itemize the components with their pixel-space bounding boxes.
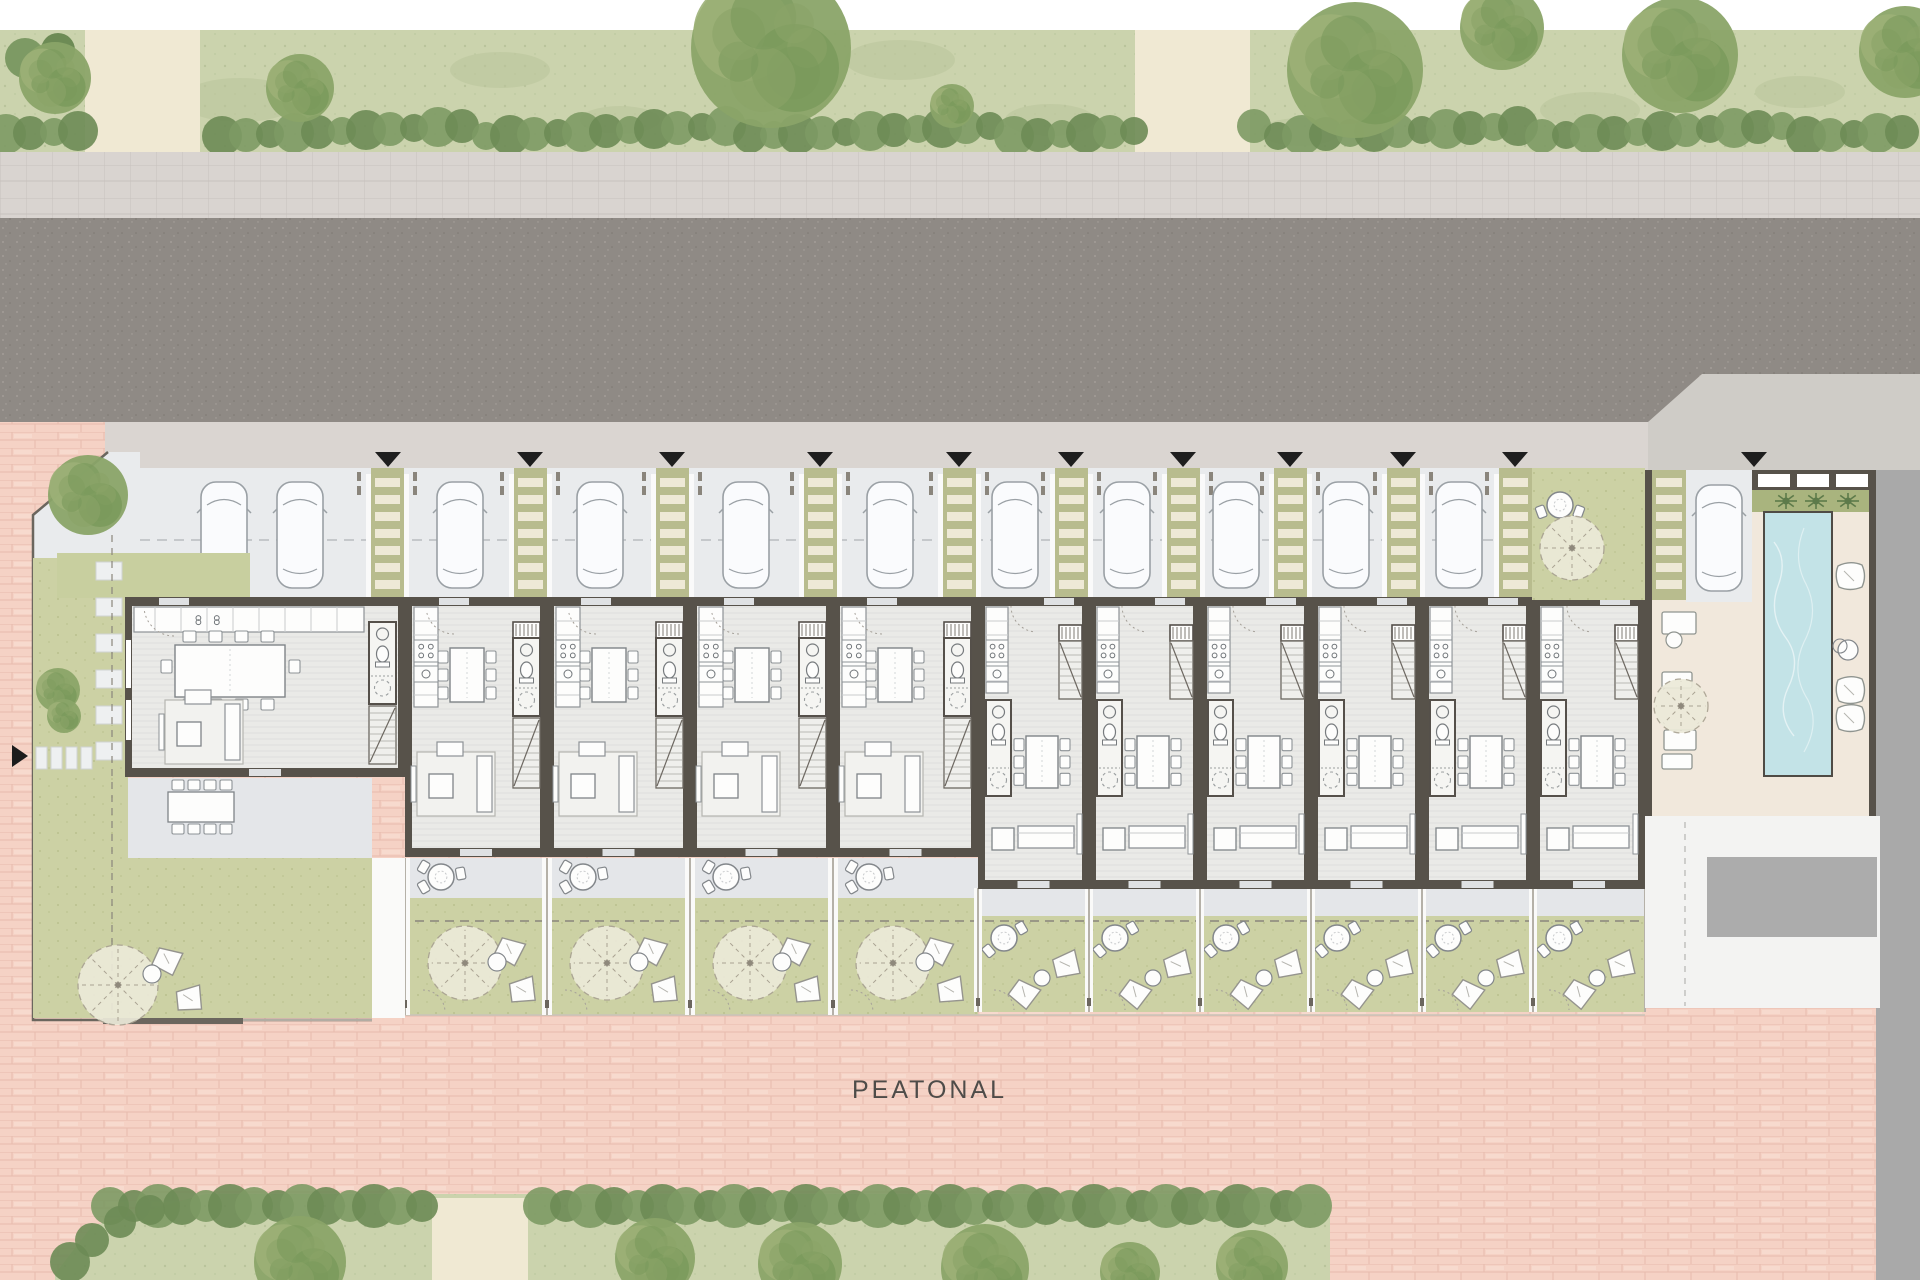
staircase bbox=[944, 718, 971, 788]
sink bbox=[556, 666, 580, 682]
party-wall bbox=[971, 597, 978, 857]
chair bbox=[1393, 739, 1403, 751]
coffee-table bbox=[857, 774, 881, 798]
west-wall bbox=[1645, 470, 1652, 824]
stepping-stone bbox=[96, 706, 122, 724]
bollard-tick bbox=[698, 472, 702, 481]
bollard-tick bbox=[985, 486, 989, 495]
utility-closet bbox=[944, 622, 971, 638]
garden-door bbox=[603, 849, 635, 856]
garden-tree bbox=[48, 455, 128, 535]
chair bbox=[1458, 739, 1468, 751]
car bbox=[719, 482, 773, 588]
side-table bbox=[1478, 970, 1494, 986]
townhouse-unit-5 bbox=[833, 597, 978, 857]
bathroom bbox=[799, 638, 826, 716]
stove bbox=[699, 640, 723, 662]
chair bbox=[740, 867, 751, 880]
utility-closet bbox=[513, 622, 540, 638]
bathroom bbox=[1097, 700, 1122, 796]
chair bbox=[235, 631, 248, 642]
pool-pillow bbox=[1836, 705, 1864, 732]
bollard-tick bbox=[556, 486, 560, 495]
toilet bbox=[521, 662, 533, 678]
utility-closet bbox=[1170, 625, 1193, 641]
chair bbox=[580, 651, 590, 663]
pool-amenity-area bbox=[1645, 470, 1880, 1008]
garden-door bbox=[1129, 881, 1161, 888]
party-wall bbox=[1082, 597, 1089, 889]
stove bbox=[986, 640, 1008, 662]
chair bbox=[1060, 756, 1070, 768]
dining-table bbox=[580, 648, 638, 702]
staircase bbox=[799, 718, 826, 788]
stove bbox=[1541, 640, 1563, 662]
utility-closet bbox=[1281, 625, 1304, 641]
townhouse-unit-7 bbox=[1089, 597, 1200, 889]
chair bbox=[597, 867, 608, 880]
grass-patch bbox=[845, 40, 955, 80]
toilet bbox=[993, 724, 1005, 740]
sink bbox=[986, 666, 1008, 682]
townhouse-unit-1 bbox=[125, 597, 405, 777]
bathroom bbox=[1208, 700, 1233, 796]
bollard-tick bbox=[642, 486, 646, 495]
armchair bbox=[865, 742, 891, 756]
toilet bbox=[807, 662, 819, 678]
parasol bbox=[1540, 516, 1604, 580]
tv-bench bbox=[411, 766, 416, 802]
tv-bench bbox=[839, 766, 844, 802]
permeable-paver-strip bbox=[799, 468, 842, 600]
chair bbox=[914, 669, 924, 681]
party-wall bbox=[833, 597, 840, 857]
permeable-paver-strip bbox=[366, 468, 409, 600]
chair bbox=[914, 651, 924, 663]
living-room-set bbox=[839, 742, 923, 816]
chair bbox=[723, 687, 733, 699]
car bbox=[1432, 482, 1486, 588]
tv-bench bbox=[1521, 814, 1526, 854]
chair bbox=[1347, 773, 1357, 785]
hedge-shrub bbox=[1288, 1184, 1332, 1228]
staircase bbox=[369, 706, 396, 764]
chair bbox=[261, 699, 274, 710]
chair bbox=[1569, 739, 1579, 751]
bollard-tick bbox=[1485, 486, 1489, 495]
side-table bbox=[1145, 970, 1161, 986]
party-wall bbox=[540, 597, 547, 857]
dining-table bbox=[438, 648, 496, 702]
bollard-tick bbox=[1429, 472, 1433, 481]
garden-path bbox=[85, 30, 200, 152]
stove bbox=[1097, 640, 1119, 662]
sofa bbox=[905, 756, 920, 812]
living-room-set bbox=[553, 742, 637, 816]
fence-post bbox=[1087, 998, 1091, 1006]
car bbox=[1209, 482, 1263, 588]
chair bbox=[188, 780, 200, 790]
garden-lawn bbox=[128, 858, 372, 1018]
stove bbox=[842, 640, 866, 662]
toilet bbox=[952, 662, 964, 678]
utility-closet bbox=[1615, 625, 1638, 641]
armchair bbox=[185, 690, 211, 704]
sofa bbox=[1462, 826, 1518, 848]
party-wall bbox=[1311, 597, 1318, 889]
front-wall bbox=[690, 597, 833, 606]
planted-patch bbox=[57, 553, 250, 598]
side-table bbox=[630, 953, 648, 971]
chair bbox=[1615, 756, 1625, 768]
bathroom bbox=[513, 638, 540, 716]
staircase bbox=[1503, 641, 1526, 699]
paved-block bbox=[1707, 857, 1877, 937]
party-wall bbox=[1089, 597, 1096, 889]
garden-door bbox=[1018, 881, 1050, 888]
pool-pillow bbox=[1836, 563, 1864, 590]
utility-closet bbox=[656, 622, 683, 638]
car bbox=[433, 482, 487, 588]
stove bbox=[1319, 640, 1341, 662]
front-wall bbox=[405, 597, 547, 606]
pool-pillow bbox=[1836, 677, 1864, 704]
front-door bbox=[724, 598, 754, 605]
lounger bbox=[1664, 730, 1696, 750]
sink bbox=[699, 666, 723, 682]
front-door bbox=[1377, 598, 1407, 605]
toilet bbox=[1215, 724, 1227, 740]
bollard-tick bbox=[790, 486, 794, 495]
bollard-tick bbox=[929, 472, 933, 481]
chair bbox=[866, 687, 876, 699]
street-tree bbox=[1287, 2, 1423, 138]
chair bbox=[289, 660, 300, 673]
car bbox=[863, 482, 917, 588]
bathroom bbox=[369, 622, 396, 704]
side-table bbox=[1367, 970, 1383, 986]
front-wall bbox=[833, 597, 978, 606]
chair bbox=[1504, 756, 1514, 768]
bollard-tick bbox=[1209, 486, 1213, 495]
chair bbox=[1014, 756, 1024, 768]
street-tree bbox=[930, 84, 974, 128]
chair bbox=[455, 867, 466, 880]
front-door bbox=[581, 598, 611, 605]
grass-patch bbox=[450, 52, 550, 88]
bollard-tick bbox=[1316, 472, 1320, 481]
dining-table bbox=[1236, 736, 1292, 788]
chair bbox=[438, 687, 448, 699]
chair bbox=[486, 669, 496, 681]
dining-table bbox=[1569, 736, 1625, 788]
stove bbox=[1430, 640, 1452, 662]
bollard-tick bbox=[1485, 472, 1489, 481]
chair bbox=[204, 780, 216, 790]
permeable-paver-strip bbox=[509, 468, 552, 600]
toilet bbox=[664, 662, 676, 678]
armchair bbox=[579, 742, 605, 756]
side-table bbox=[1666, 632, 1682, 648]
sink bbox=[1541, 666, 1563, 682]
palm-plant bbox=[1805, 493, 1827, 509]
bollard-tick bbox=[790, 472, 794, 481]
garden-door bbox=[1351, 881, 1383, 888]
side-table bbox=[1838, 640, 1858, 660]
sofa bbox=[1129, 826, 1185, 848]
utility-closet bbox=[1392, 625, 1415, 641]
garden-walkway bbox=[372, 858, 405, 1018]
fence-post bbox=[976, 998, 980, 1006]
stepping-stone bbox=[51, 747, 62, 769]
stove bbox=[414, 640, 438, 662]
coffee-table bbox=[1103, 828, 1125, 850]
hedge-shrub bbox=[406, 1190, 438, 1222]
hedge-shrub bbox=[58, 111, 98, 151]
garden-door bbox=[1573, 881, 1605, 888]
stove bbox=[1208, 640, 1230, 662]
fence-post bbox=[688, 1000, 692, 1008]
chair bbox=[1393, 773, 1403, 785]
permeable-paver-strip bbox=[938, 468, 981, 600]
bathroom bbox=[1430, 700, 1455, 796]
chair bbox=[486, 651, 496, 663]
chair bbox=[866, 669, 876, 681]
chair bbox=[204, 824, 216, 834]
lounger bbox=[1662, 612, 1696, 634]
south-landscape-strip bbox=[50, 1184, 1332, 1280]
chair bbox=[1282, 773, 1292, 785]
sink bbox=[842, 666, 866, 682]
permeable-paver-strip bbox=[1162, 468, 1205, 600]
chair bbox=[1347, 739, 1357, 751]
living-room-set bbox=[159, 690, 243, 764]
bollard-tick bbox=[1097, 486, 1101, 495]
bollard-tick bbox=[413, 486, 417, 495]
living-room-set bbox=[696, 742, 780, 816]
hedge-shrub bbox=[135, 1195, 165, 1225]
stepping-stone bbox=[96, 562, 122, 580]
swimming-pool bbox=[1764, 512, 1832, 776]
bathroom bbox=[1541, 700, 1566, 796]
chair bbox=[723, 651, 733, 663]
fence-post bbox=[1531, 998, 1535, 1006]
chair bbox=[1615, 739, 1625, 751]
tv-bench bbox=[1410, 814, 1415, 854]
sofa bbox=[762, 756, 777, 812]
party-wall bbox=[683, 597, 690, 857]
chair bbox=[771, 687, 781, 699]
chair bbox=[261, 631, 274, 642]
kitchen-counter bbox=[1319, 607, 1341, 693]
party-wall bbox=[1422, 597, 1429, 889]
window bbox=[126, 700, 131, 740]
palm-plant bbox=[1837, 493, 1859, 509]
permeable-paver-strip bbox=[1382, 468, 1425, 600]
side-table bbox=[1589, 970, 1605, 986]
townhouse-unit-9 bbox=[1311, 597, 1422, 889]
street-tree bbox=[1622, 0, 1738, 113]
side-table bbox=[1256, 970, 1272, 986]
dining-table bbox=[175, 645, 285, 697]
garden-door bbox=[249, 769, 281, 776]
coffee-table bbox=[714, 774, 738, 798]
chair bbox=[1569, 773, 1579, 785]
party-wall bbox=[1638, 597, 1645, 889]
bollard-tick bbox=[1260, 486, 1264, 495]
terrace-strip bbox=[128, 778, 372, 858]
chair bbox=[1347, 756, 1357, 768]
site-plan-canvas: PEATONAL bbox=[0, 0, 1920, 1280]
bathroom bbox=[986, 700, 1011, 796]
window bbox=[1836, 474, 1868, 487]
toilet bbox=[377, 646, 389, 662]
dining-table bbox=[723, 648, 781, 702]
sofa bbox=[1573, 826, 1629, 848]
chair bbox=[220, 824, 232, 834]
east-wall bbox=[1869, 470, 1876, 824]
garden-door bbox=[1240, 881, 1272, 888]
stepping-stone bbox=[96, 598, 122, 616]
permeable-paver-strip bbox=[1494, 468, 1537, 600]
chair bbox=[628, 669, 638, 681]
permeable-paver-strip bbox=[651, 468, 694, 600]
living-room-set bbox=[411, 742, 495, 816]
tv-bench bbox=[1188, 814, 1193, 854]
sink bbox=[1430, 666, 1452, 682]
armchair bbox=[722, 742, 748, 756]
chair bbox=[1458, 756, 1468, 768]
townhouse-unit-4 bbox=[690, 597, 833, 857]
chair bbox=[438, 651, 448, 663]
kitchen-counter bbox=[1097, 607, 1119, 693]
road-apron bbox=[1648, 374, 1920, 470]
chair bbox=[188, 824, 200, 834]
chair bbox=[1458, 773, 1468, 785]
bollard-tick bbox=[1260, 472, 1264, 481]
street-tree bbox=[19, 42, 91, 114]
bollard-tick bbox=[1209, 472, 1213, 481]
bollard-tick bbox=[1041, 472, 1045, 481]
bollard-tick bbox=[413, 472, 417, 481]
bollard-tick bbox=[985, 472, 989, 481]
chair bbox=[1014, 773, 1024, 785]
kitchen-counter bbox=[986, 607, 1008, 693]
bathroom bbox=[1319, 700, 1344, 796]
bollard-tick bbox=[500, 472, 504, 481]
garden-door bbox=[890, 849, 922, 856]
stepping-stone bbox=[96, 742, 122, 760]
chair bbox=[1282, 756, 1292, 768]
chair bbox=[1171, 739, 1181, 751]
staircase bbox=[1615, 641, 1638, 699]
kitchen-counter bbox=[134, 607, 364, 632]
sofa bbox=[1018, 826, 1074, 848]
chair bbox=[161, 660, 172, 673]
chair bbox=[1236, 756, 1246, 768]
front-door bbox=[867, 598, 897, 605]
staircase bbox=[513, 718, 540, 788]
sofa bbox=[477, 756, 492, 812]
bollard-tick bbox=[1041, 486, 1045, 495]
east-paving-band bbox=[1876, 470, 1920, 1280]
toilet bbox=[1437, 724, 1449, 740]
sink bbox=[414, 666, 438, 682]
chair bbox=[1171, 773, 1181, 785]
kitchen-counter bbox=[1430, 607, 1452, 693]
north-sidewalk bbox=[0, 152, 1920, 218]
tv-bench bbox=[1633, 814, 1638, 854]
fence-post bbox=[1309, 998, 1313, 1006]
coffee-table bbox=[992, 828, 1014, 850]
chair bbox=[1060, 739, 1070, 751]
bollard-tick bbox=[1429, 486, 1433, 495]
window bbox=[126, 640, 131, 688]
hedge-shrub bbox=[75, 1223, 109, 1257]
chair bbox=[771, 669, 781, 681]
parasol bbox=[1654, 679, 1708, 733]
toilet bbox=[1326, 724, 1338, 740]
bollard-tick bbox=[642, 472, 646, 481]
staircase bbox=[1059, 641, 1082, 699]
bathroom bbox=[944, 638, 971, 716]
chair bbox=[771, 651, 781, 663]
chair bbox=[172, 780, 184, 790]
chair bbox=[883, 867, 894, 880]
bollard-tick bbox=[357, 486, 361, 495]
sofa bbox=[619, 756, 634, 812]
dining-table bbox=[1125, 736, 1181, 788]
stepping-stone bbox=[96, 670, 122, 688]
kitchen-counter bbox=[699, 607, 723, 707]
fence-post bbox=[1198, 998, 1202, 1006]
party-wall bbox=[398, 597, 405, 777]
side-table bbox=[143, 965, 161, 983]
bollard-tick bbox=[1153, 486, 1157, 495]
chair bbox=[1236, 773, 1246, 785]
utility-closet bbox=[1503, 625, 1526, 641]
garden-door bbox=[460, 849, 492, 856]
kitchen-counter bbox=[1541, 607, 1563, 693]
sofa bbox=[1240, 826, 1296, 848]
front-door bbox=[1155, 598, 1185, 605]
party-wall bbox=[547, 597, 554, 857]
party-wall bbox=[826, 597, 833, 857]
chair bbox=[1504, 739, 1514, 751]
garden-path bbox=[1135, 30, 1250, 152]
dining-table bbox=[1458, 736, 1514, 788]
stepping-stone bbox=[66, 747, 77, 769]
kitchen-counter bbox=[842, 607, 866, 707]
front-door bbox=[1488, 598, 1518, 605]
front-door bbox=[1266, 598, 1296, 605]
street-tree bbox=[266, 54, 334, 122]
bollard-tick bbox=[846, 486, 850, 495]
party-wall bbox=[1533, 597, 1540, 889]
entry-sidewalk bbox=[105, 422, 1648, 470]
fence-post bbox=[545, 1000, 549, 1008]
garden-path bbox=[432, 1198, 528, 1280]
party-wall bbox=[690, 597, 697, 857]
party-wall bbox=[1415, 597, 1422, 889]
car bbox=[988, 482, 1042, 588]
fence-post bbox=[831, 1000, 835, 1008]
townhouse-unit-3 bbox=[547, 597, 690, 857]
coffee-table bbox=[571, 774, 595, 798]
tv-bench bbox=[1299, 814, 1304, 854]
chair bbox=[580, 687, 590, 699]
coffee-table bbox=[1547, 828, 1569, 850]
